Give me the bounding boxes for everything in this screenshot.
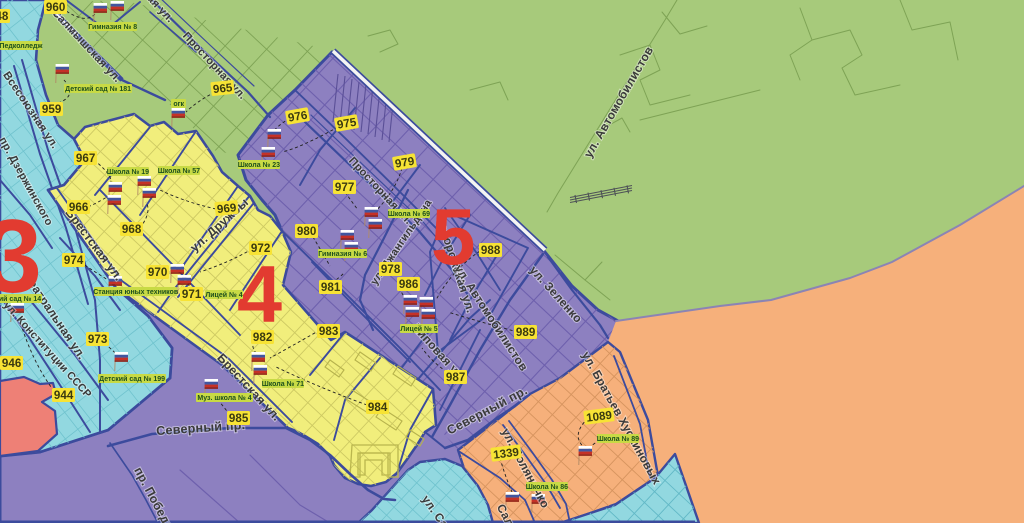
svg-text:989: 989	[516, 326, 536, 339]
svg-text:969: 969	[216, 201, 237, 216]
svg-text:960: 960	[46, 1, 65, 14]
svg-text:Гимназия № 8: Гимназия № 8	[88, 23, 137, 31]
svg-text:968: 968	[122, 223, 142, 236]
svg-text:967: 967	[76, 152, 95, 165]
svg-text:4: 4	[237, 250, 282, 340]
svg-text:Педколледж: Педколледж	[0, 43, 43, 50]
svg-text:987: 987	[446, 371, 465, 384]
svg-text:Детский сад № 199: Детский сад № 199	[99, 375, 165, 383]
svg-text:972: 972	[251, 242, 270, 255]
svg-text:974: 974	[64, 254, 84, 267]
svg-text:Станция юных техников: Станция юных техников	[93, 289, 179, 296]
svg-text:982: 982	[253, 331, 272, 344]
svg-text:Лицей № 4: Лицей № 4	[205, 291, 242, 299]
svg-text:946: 946	[2, 357, 22, 370]
svg-text:977: 977	[335, 181, 354, 194]
svg-text:983: 983	[319, 325, 339, 338]
svg-text:Школа № 86: Школа № 86	[526, 483, 568, 491]
svg-text:959: 959	[42, 103, 62, 116]
svg-text:Школа № 89: Школа № 89	[597, 435, 639, 443]
svg-text:973: 973	[88, 333, 108, 346]
svg-text:980: 980	[297, 225, 316, 238]
svg-text:985: 985	[229, 412, 249, 425]
svg-text:Школа № 19: Школа № 19	[107, 168, 149, 176]
svg-text:Детский сад № 14: Детский сад № 14	[0, 295, 41, 303]
svg-text:Школа № 69: Школа № 69	[388, 210, 430, 218]
svg-text:огк: огк	[173, 101, 184, 108]
svg-text:981: 981	[321, 281, 341, 294]
svg-text:984: 984	[368, 401, 388, 414]
svg-text:965: 965	[212, 81, 233, 96]
svg-text:Школа № 71: Школа № 71	[262, 380, 304, 388]
svg-text:Гимназия № 6: Гимназия № 6	[318, 250, 367, 258]
svg-text:Муз. школа № 4: Муз. школа № 4	[197, 394, 251, 402]
svg-text:5: 5	[431, 192, 476, 281]
svg-text:971: 971	[182, 288, 202, 301]
svg-text:986: 986	[399, 278, 419, 291]
svg-text:Школа № 23: Школа № 23	[238, 161, 280, 169]
svg-text:978: 978	[381, 263, 401, 276]
svg-text:Школа № 57: Школа № 57	[158, 167, 200, 175]
svg-text:970: 970	[148, 266, 167, 279]
svg-text:988: 988	[481, 244, 501, 257]
svg-text:Лицей № 5: Лицей № 5	[400, 325, 437, 333]
svg-text:944: 944	[54, 389, 74, 402]
svg-text:948: 948	[0, 10, 9, 23]
svg-text:Детский сад № 181: Детский сад № 181	[65, 85, 131, 93]
svg-text:966: 966	[69, 201, 89, 214]
